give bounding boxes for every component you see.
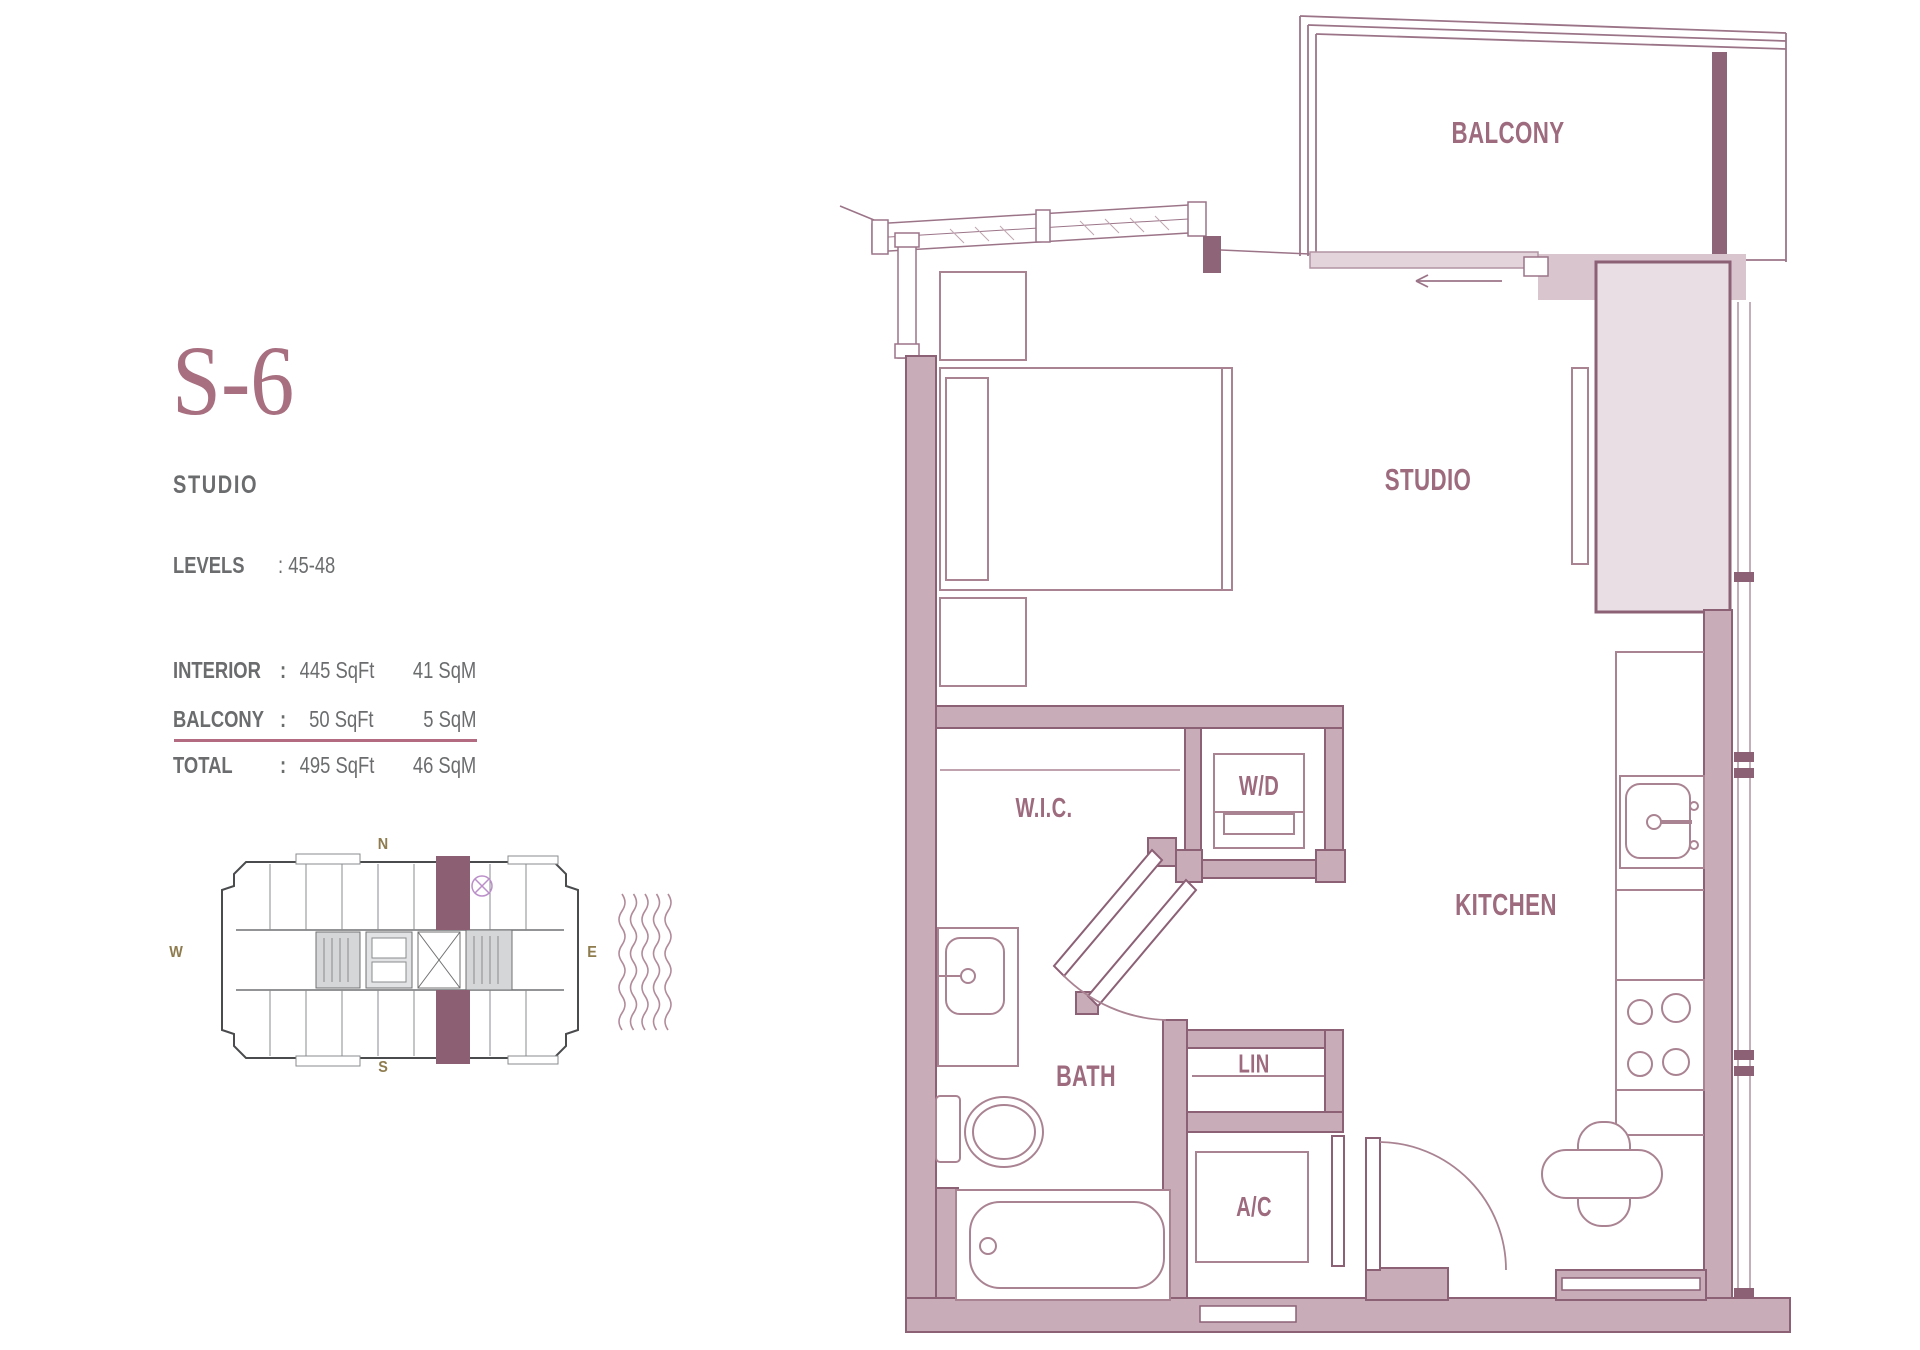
core-shaft-block [1538, 254, 1746, 612]
slide-direction-arrow [1416, 275, 1502, 287]
room-label-wd: W/D [1239, 770, 1279, 802]
room-label-balcony: BALCONY [1452, 115, 1565, 151]
room-label-kitchen: KITCHEN [1455, 887, 1557, 923]
room-label-studio: STUDIO [1385, 462, 1471, 498]
burner [1662, 994, 1690, 1022]
area-separator [174, 739, 477, 742]
ac-door-leaf [1332, 1136, 1344, 1266]
bath-fixtures [936, 928, 1170, 1300]
unit-code-title: S-6 [172, 331, 294, 431]
water-waves [619, 894, 671, 1030]
lin-ac-group [1192, 1076, 1344, 1266]
compass-south: S [378, 1059, 388, 1077]
floorplan-page: S-6 STUDIO LEVELS : 45-48 INTERIOR : 445… [0, 0, 1920, 1350]
bed-group [940, 272, 1588, 686]
unit-type: STUDIO [173, 471, 279, 500]
levels-value: : 45-48 [278, 552, 335, 579]
west-glazing [895, 233, 919, 358]
room-label-bath: BATH [1056, 1060, 1116, 1094]
levels-label: LEVELS [173, 552, 245, 579]
tub-drain [980, 1238, 996, 1254]
dining-set [1542, 1122, 1662, 1226]
highlighted-unit-south [436, 990, 470, 1064]
burner [1628, 1052, 1652, 1076]
room-label-wic: W.I.C. [1015, 792, 1072, 824]
room-label-lin: LIN [1238, 1049, 1269, 1080]
burner [1663, 1049, 1689, 1075]
bed-pillow [946, 378, 988, 580]
nightstand-top [940, 272, 1026, 360]
nightstand-bottom [940, 598, 1026, 686]
highlighted-unit-north [436, 856, 470, 930]
burner [1628, 1000, 1652, 1024]
bathtub-inner [970, 1202, 1164, 1288]
balcony-column [1712, 52, 1727, 262]
key-plan [222, 854, 578, 1066]
stove [1616, 980, 1704, 1090]
sink-faucet [1647, 815, 1661, 829]
balcony-slider [1310, 252, 1548, 287]
bath-door-leaf [1054, 850, 1162, 976]
compass-west: W [169, 944, 183, 962]
room-label-ac: A/C [1236, 1191, 1272, 1223]
window-mullion-ticks [1734, 572, 1754, 1298]
east-windows [1738, 302, 1750, 1296]
media-console [1572, 368, 1588, 564]
slider-jamb [1203, 236, 1221, 273]
compass-north: N [378, 836, 388, 854]
dining-table [1542, 1150, 1662, 1198]
entry-door [1366, 1138, 1506, 1270]
toilet-tank [936, 1096, 960, 1162]
compass-east: E [587, 944, 597, 962]
kitchen-group [1616, 652, 1704, 1135]
